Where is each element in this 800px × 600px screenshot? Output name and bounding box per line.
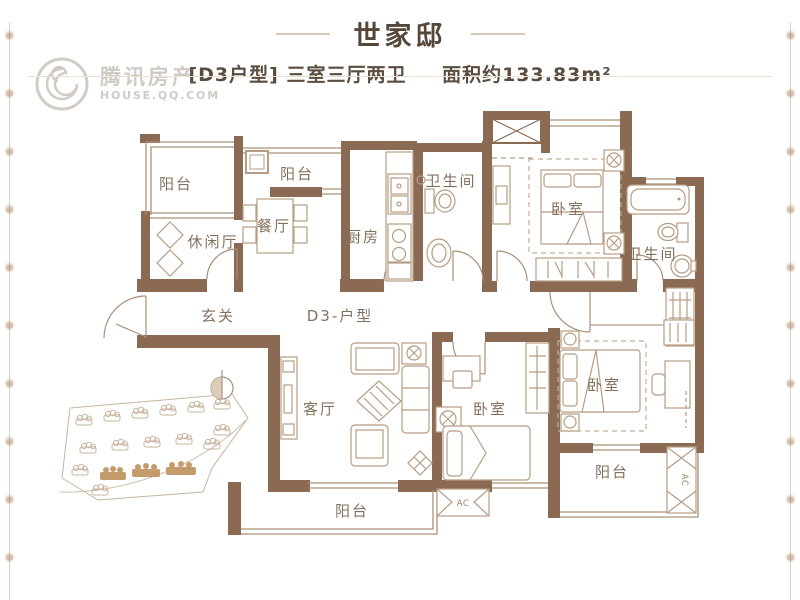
room-label-bathroom-1: 卫生间 bbox=[425, 172, 476, 190]
ac-label-right: AC bbox=[679, 474, 689, 487]
room-label-dining-room: 餐厅 bbox=[257, 217, 291, 235]
floorplan-drawing: 阳台 阳台 休闲厅 餐厅 厨房 卫生间 卧室 卫生间 玄关 客厅 卧室 卧室 阳… bbox=[0, 0, 800, 600]
bedroom-3-furniture bbox=[558, 320, 694, 431]
compass-icon bbox=[211, 370, 233, 399]
room-label-balcony-top-left: 阳台 bbox=[159, 175, 193, 193]
floorplan-page: 腾讯房产 HOUSE.QQ.COM 世家邸 [D3户型] 三室三厅两卫 面积约1… bbox=[0, 0, 800, 600]
room-label-balcony-top: 阳台 bbox=[280, 165, 314, 183]
washer bbox=[246, 151, 268, 173]
ac-label-bottom: AC bbox=[457, 499, 470, 509]
site-buildings bbox=[72, 398, 230, 495]
room-label-living-room: 客厅 bbox=[303, 400, 337, 418]
kitchen-counter bbox=[386, 152, 413, 281]
room-label-bedroom-3: 卧室 bbox=[587, 376, 621, 394]
room-label-entry: 玄关 bbox=[201, 307, 235, 325]
room-label-bedroom-master: 卧室 bbox=[551, 200, 585, 218]
unit-type-label: D3-户型 bbox=[307, 307, 374, 325]
site-highlighted-buildings bbox=[100, 461, 196, 480]
room-label-kitchen: 厨房 bbox=[346, 228, 380, 246]
room-label-bedroom-2: 卧室 bbox=[473, 400, 507, 418]
room-label-leisure-hall: 休闲厅 bbox=[187, 233, 238, 251]
leisure-hall-screens bbox=[157, 222, 183, 276]
site-plan bbox=[60, 394, 248, 500]
shaft-box bbox=[492, 119, 541, 143]
room-label-bathroom-2: 卫生间 bbox=[626, 245, 677, 263]
room-label-balcony-right: 阳台 bbox=[595, 463, 629, 481]
room-label-balcony-bottom: 阳台 bbox=[335, 502, 369, 520]
